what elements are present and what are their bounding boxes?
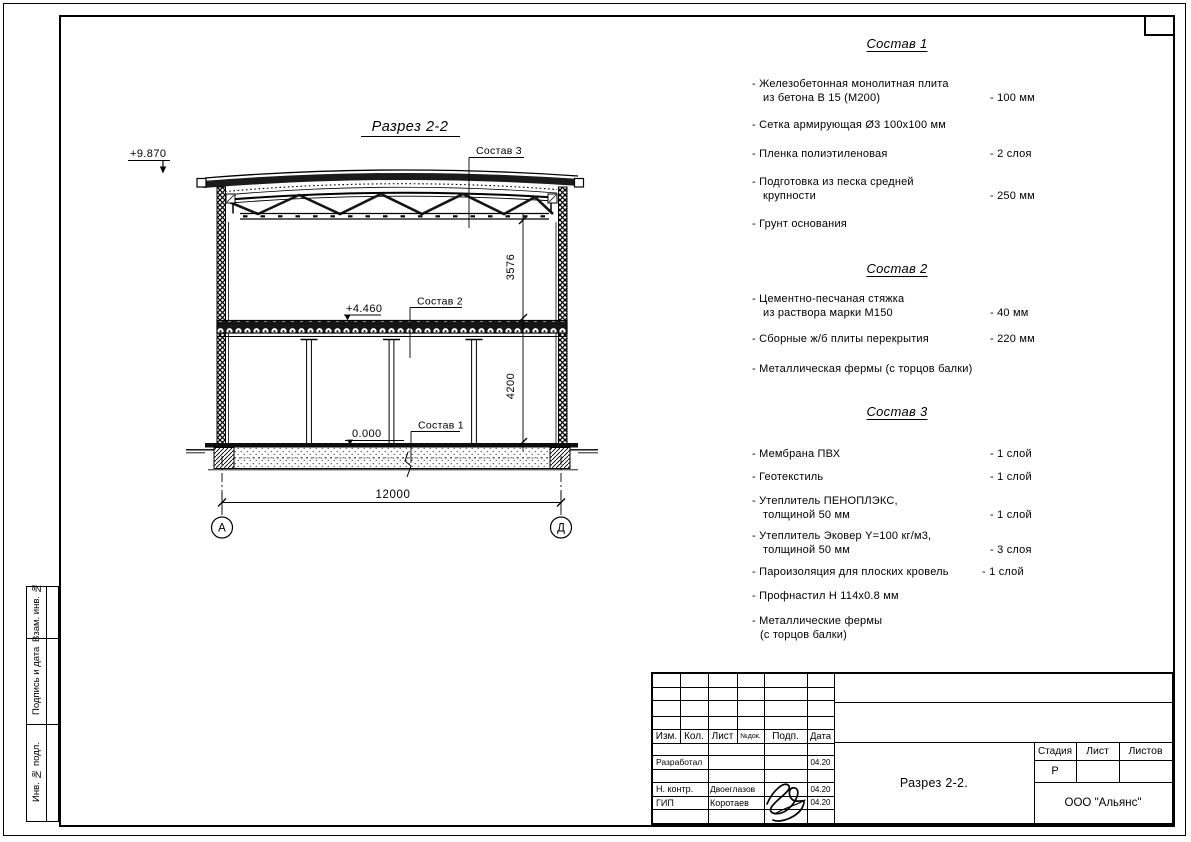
item-text: - Металлические фермы bbox=[752, 615, 1182, 629]
tb-doc-title: Разрез 2-2. bbox=[834, 742, 1034, 823]
list-item: - Железобетонная монолитная плита из бет… bbox=[752, 78, 1182, 105]
tb-company: ООО "Альянс" bbox=[1034, 782, 1172, 823]
item-value: - 100 мм bbox=[990, 92, 1035, 106]
elevation-roof-text: +9.870 bbox=[130, 148, 166, 160]
item-text: - Утеплитель ПЕНОПЛЭКС, bbox=[752, 495, 1182, 509]
side-stamp-label-podpis: Подпись и дата bbox=[27, 638, 46, 724]
item-value: - 1 слой bbox=[990, 448, 1032, 462]
leader-sostav1-text: Состав 1 bbox=[418, 420, 464, 432]
axis-left-bubble: А bbox=[212, 517, 233, 538]
item-value: - 40 мм bbox=[990, 307, 1029, 321]
item-text: - Пароизоляция для плоских кровель bbox=[752, 566, 1182, 580]
tb-sheet-label: Лист bbox=[1076, 742, 1119, 760]
roof bbox=[197, 170, 584, 195]
tb-line bbox=[708, 674, 709, 823]
ground-slab bbox=[186, 443, 598, 477]
tb-name-ncontr: Двоеглазов bbox=[710, 782, 763, 796]
list-item: - Грунт основания bbox=[752, 218, 1182, 232]
drawing-title: Разрез 2-2 bbox=[361, 119, 460, 137]
column-1 bbox=[301, 340, 318, 444]
side-stamp-divider bbox=[46, 587, 47, 821]
dim-span-text: 12000 bbox=[376, 489, 411, 501]
elevation-ground: 0.000 bbox=[345, 428, 404, 445]
item-value: - 1 слой bbox=[990, 509, 1032, 523]
tb-date-developer: 04.20 bbox=[807, 755, 834, 769]
list-item: - Металлическая фермы (с торцов балки) bbox=[752, 363, 1182, 377]
elevation-ground-text: 0.000 bbox=[352, 428, 382, 440]
tb-col-data: Дата bbox=[807, 729, 834, 743]
right-foundation bbox=[550, 448, 570, 469]
side-stamp-label-inv: Инв. № подл. bbox=[27, 724, 46, 820]
item-text: - Профнастил Н 114х0.8 мм bbox=[752, 590, 1182, 604]
drawing-title-text: Разрез 2-2 bbox=[372, 119, 449, 135]
item-value: - 2 слоя bbox=[990, 148, 1032, 162]
column-2 bbox=[383, 340, 400, 444]
sostav1-title: Состав 1 bbox=[752, 36, 1042, 51]
roof-left-cap bbox=[197, 179, 206, 188]
list-item: - Пароизоляция для плоских кровель - 1 с… bbox=[752, 566, 1182, 580]
intermediate-floor bbox=[217, 321, 567, 337]
item-text: - Подготовка из песка средней bbox=[752, 176, 1182, 190]
tb-role-developer: Разработал bbox=[656, 755, 708, 769]
item-text: - Сборные ж/б плиты перекрытия bbox=[752, 333, 1182, 347]
item-text: крупности bbox=[763, 190, 1182, 204]
tb-stage-value: Р bbox=[1034, 760, 1076, 782]
list-item: - Пленка полиэтиленовая - 2 слоя bbox=[752, 148, 1182, 162]
walls bbox=[217, 187, 567, 444]
sostav3-title: Состав 3 bbox=[752, 404, 1042, 419]
item-text: - Геотекстиль bbox=[752, 471, 1182, 485]
column-3 bbox=[466, 340, 483, 444]
tb-sheets-label: Листов bbox=[1119, 742, 1172, 760]
item-text: толщиной 50 мм bbox=[763, 544, 1182, 558]
item-text: - Сетка армирующая Ø3 100х100 мм bbox=[752, 119, 1182, 133]
tb-line bbox=[834, 702, 1172, 703]
list-item: - Подготовка из песка средней крупности … bbox=[752, 176, 1182, 203]
list-item: - Профнастил Н 114х0.8 мм bbox=[752, 590, 1182, 604]
tb-col-kol: Кол. bbox=[680, 729, 708, 743]
item-value: - 220 мм bbox=[990, 333, 1035, 347]
elevation-roof: +9.870 bbox=[128, 148, 170, 174]
list-item: - Цементно-песчаная стяжка из раствора м… bbox=[752, 293, 1182, 320]
side-stamp-label-vzam: Взам. инв. № bbox=[27, 587, 46, 638]
item-text: из раствора марки М150 bbox=[763, 307, 1182, 321]
item-text: толщиной 50 мм bbox=[763, 509, 1182, 523]
list-item: - Металлические фермы (с торцов балки) bbox=[752, 615, 1182, 642]
right-wall bbox=[559, 187, 568, 444]
side-stamp: Взам. инв. № Подпись и дата Инв. № подл. bbox=[26, 586, 59, 822]
list-item: - Мембрана ПВХ - 1 слой bbox=[752, 448, 1182, 462]
signature bbox=[761, 770, 813, 826]
item-text: из бетона В 15 (М200) bbox=[763, 92, 1182, 106]
axis-right-text: Д bbox=[557, 523, 565, 535]
item-text: - Грунт основания bbox=[752, 218, 1182, 232]
list-item: - Утеплитель Эковер Y=100 кг/м3, толщино… bbox=[752, 530, 1182, 557]
dim-floor-text: 4200 bbox=[505, 373, 517, 399]
tb-role-gip: ГИП bbox=[656, 796, 708, 809]
item-text: - Железобетонная монолитная плита bbox=[752, 78, 1182, 92]
item-text: (с торцов балки) bbox=[760, 629, 1182, 643]
dim-truss-text: 3576 bbox=[505, 254, 517, 280]
item-value: - 1 слой bbox=[990, 471, 1032, 485]
roof-right-cap bbox=[575, 179, 584, 188]
tb-role-ncontr: Н. контр. bbox=[656, 782, 708, 796]
elevation-floor-text: +4.460 bbox=[346, 303, 382, 315]
title-block: Изм. Кол. Лист №док. Подп. Дата Разработ… bbox=[651, 672, 1174, 825]
list-item: - Утеплитель ПЕНОПЛЭКС, толщиной 50 мм -… bbox=[752, 495, 1182, 522]
tb-name-gip: Коротаев bbox=[710, 796, 763, 809]
leader-sostav3-text: Состав 3 bbox=[476, 145, 522, 157]
item-text: - Мембрана ПВХ bbox=[752, 448, 1182, 462]
left-foundation bbox=[214, 448, 234, 469]
sostav2-title: Состав 2 bbox=[752, 261, 1042, 276]
tb-stage-label: Стадия bbox=[1034, 742, 1076, 760]
item-value: - 3 слоя bbox=[990, 544, 1032, 558]
item-text: - Цементно-песчаная стяжка bbox=[752, 293, 1182, 307]
item-text: - Пленка полиэтиленовая bbox=[752, 148, 1182, 162]
elevation-floor: +4.460 bbox=[344, 303, 382, 320]
roof-truss bbox=[226, 193, 557, 219]
list-item: - Сборные ж/б плиты перекрытия - 220 мм bbox=[752, 333, 1182, 347]
list-item: - Геотекстиль - 1 слой bbox=[752, 471, 1182, 485]
tb-col-izm: Изм. bbox=[653, 729, 680, 743]
left-wall bbox=[217, 187, 226, 444]
sheet: { "colors": { "ink": "#000000", "paper":… bbox=[0, 0, 1191, 842]
axis-left-text: А bbox=[218, 523, 226, 535]
item-text: - Утеплитель Эковер Y=100 кг/м3, bbox=[752, 530, 1182, 544]
axis-right-bubble: Д bbox=[551, 517, 572, 538]
item-value: - 250 мм bbox=[990, 190, 1035, 204]
leader-sostav2-text: Состав 2 bbox=[417, 296, 463, 308]
item-value: - 1 слой bbox=[982, 566, 1024, 580]
item-text: - Металлическая фермы (с торцов балки) bbox=[752, 363, 1182, 377]
list-item: - Сетка армирующая Ø3 100х100 мм bbox=[752, 119, 1182, 133]
tb-col-podp: Подп. bbox=[764, 729, 807, 743]
tb-col-list: Лист bbox=[708, 729, 737, 743]
tb-col-ndok: №док. bbox=[737, 729, 764, 743]
